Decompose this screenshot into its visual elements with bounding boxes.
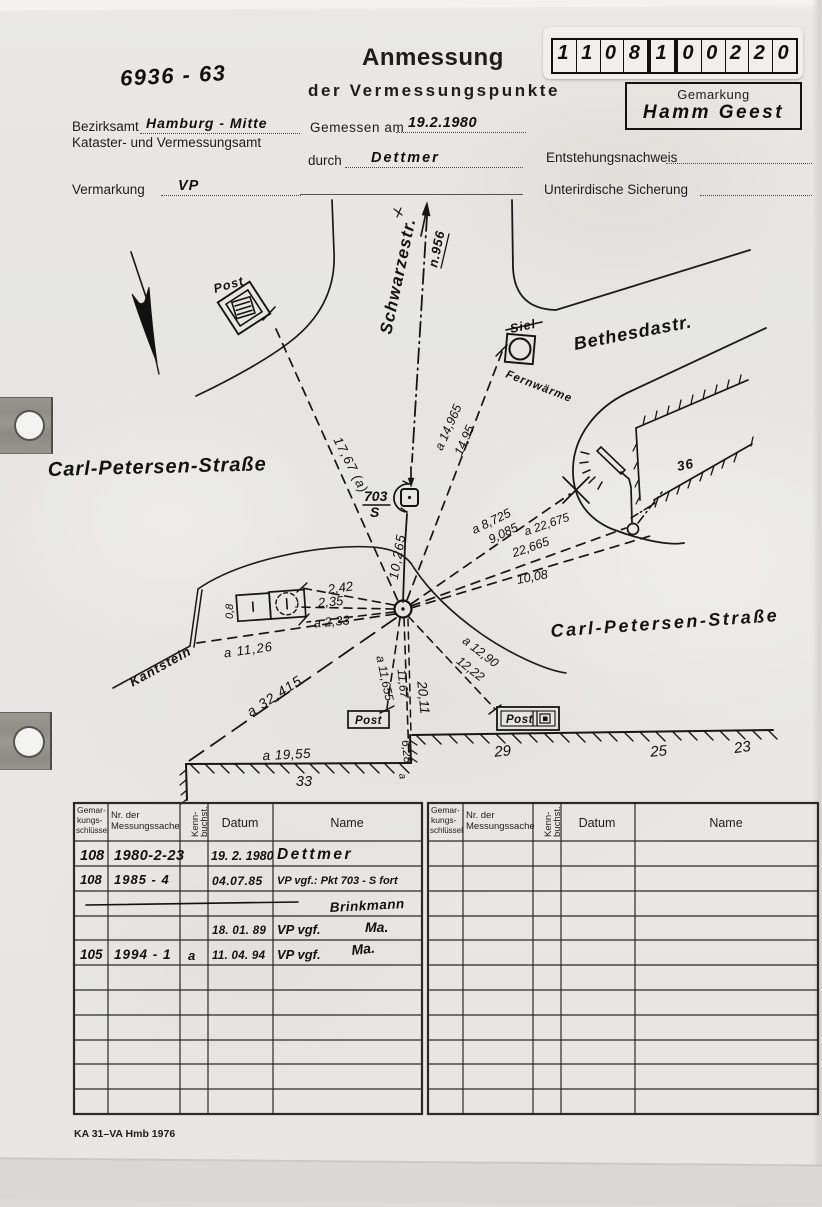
svg-text:Gemar-: Gemar-	[431, 805, 460, 815]
svg-text:11. 04. 94: 11. 04. 94	[212, 950, 266, 962]
svg-text:11,67: 11,67	[394, 668, 411, 700]
svg-text:a 32,415: a 32,415	[244, 672, 305, 719]
svg-text:10,08: 10,08	[516, 567, 549, 587]
svg-text:Messungssache: Messungssache	[111, 821, 180, 832]
svg-text:29: 29	[493, 742, 513, 761]
svg-text:108: 108	[80, 848, 105, 864]
svg-text:Schwarzestr.: Schwarzestr.	[376, 216, 419, 336]
svg-text:703: 703	[364, 488, 388, 504]
svg-text:33: 33	[296, 774, 312, 790]
svg-text:buchst.: buchst.	[552, 806, 563, 837]
svg-text:Messungssache: Messungssache	[466, 821, 535, 832]
svg-text:Kantstein: Kantstein	[127, 643, 194, 689]
svg-text:Brinkmann: Brinkmann	[329, 896, 405, 915]
svg-text:a: a	[396, 773, 408, 781]
svg-text:19. 2. 1980: 19. 2. 1980	[211, 849, 274, 863]
svg-text:schlüssel: schlüssel	[430, 826, 463, 835]
svg-text:Nr. der: Nr. der	[111, 810, 140, 821]
svg-text:Bethesdastr.: Bethesdastr.	[572, 311, 694, 354]
svg-text:25: 25	[649, 742, 669, 761]
svg-text:Carl-Petersen-Straße: Carl-Petersen-Straße	[48, 453, 267, 481]
svg-text:kungs-: kungs-	[77, 815, 103, 825]
svg-text:6,28: 6,28	[399, 739, 415, 764]
svg-text:schlüssel: schlüssel	[76, 826, 109, 835]
svg-text:23: 23	[732, 738, 753, 757]
svg-text:buchst.: buchst.	[199, 806, 210, 837]
svg-text:a 19,55: a 19,55	[262, 746, 311, 764]
svg-text:Datum: Datum	[579, 816, 616, 830]
svg-text:Post: Post	[506, 714, 534, 726]
svg-text:105: 105	[80, 947, 103, 962]
svg-text:Carl-Petersen-Straße: Carl-Petersen-Straße	[550, 605, 780, 641]
svg-text:1994 - 1: 1994 - 1	[114, 947, 172, 962]
svg-text:Name: Name	[330, 816, 363, 830]
svg-text:Dettmer: Dettmer	[277, 846, 353, 863]
svg-text:20,11: 20,11	[414, 679, 432, 714]
svg-text:18. 01. 89: 18. 01. 89	[212, 925, 266, 937]
svg-text:0,8: 0,8	[224, 603, 236, 619]
svg-text:n.956: n.956	[425, 229, 447, 269]
svg-text:S: S	[370, 504, 380, 520]
svg-text:a: a	[188, 948, 195, 963]
svg-text:36: 36	[676, 456, 696, 474]
svg-text:VP vgf.: Pkt 703 - S fort: VP vgf.: Pkt 703 - S fort	[277, 875, 399, 887]
svg-text:Post: Post	[355, 715, 383, 727]
svg-text:VP vgf.: VP vgf.	[277, 947, 321, 962]
svg-text:04.07.85: 04.07.85	[212, 874, 263, 888]
svg-text:Fernwärme: Fernwärme	[504, 369, 574, 405]
svg-text:a 11,26: a 11,26	[223, 639, 274, 661]
svg-text:22,665: 22,665	[509, 534, 551, 560]
svg-text:Ma.: Ma.	[351, 940, 376, 958]
svg-text:a 22,675: a 22,675	[522, 510, 571, 539]
svg-text:Gemar-: Gemar-	[77, 805, 106, 815]
svg-text:2,35: 2,35	[316, 593, 344, 610]
svg-text:Post: Post	[212, 274, 246, 296]
svg-text:Name: Name	[709, 816, 742, 830]
svg-text:Nr. der: Nr. der	[466, 810, 495, 821]
svg-text:VP vgf.: VP vgf.	[277, 922, 321, 937]
svg-text:Ma.: Ma.	[365, 919, 388, 935]
svg-text:Datum: Datum	[222, 816, 259, 830]
svg-text:1980-2-23: 1980-2-23	[114, 848, 185, 864]
svg-text:108: 108	[80, 872, 102, 887]
svg-text:1985 - 4: 1985 - 4	[114, 872, 170, 887]
svg-text:kungs-: kungs-	[431, 815, 457, 825]
